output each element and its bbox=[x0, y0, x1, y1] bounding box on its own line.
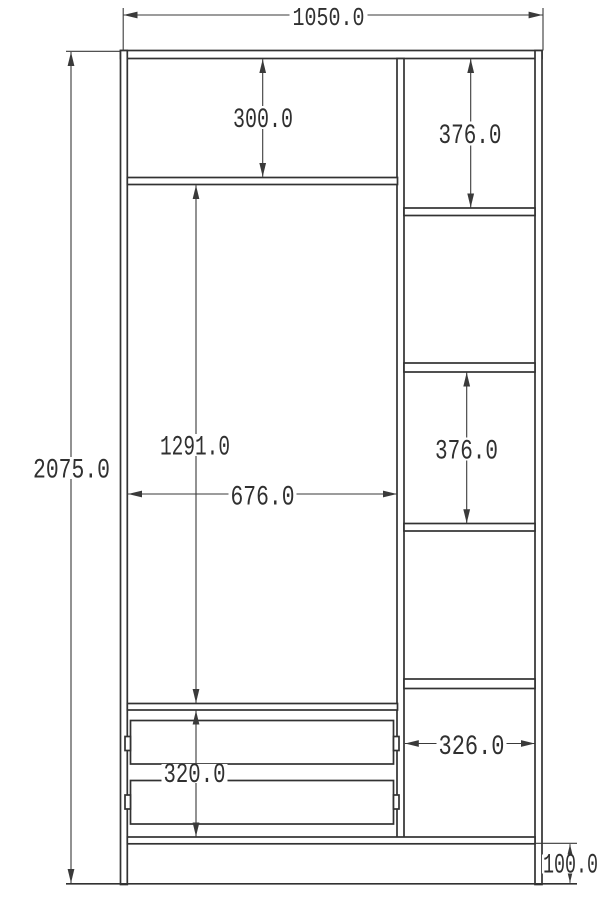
bottom-floor-board bbox=[127, 837, 535, 844]
right-shelf-2 bbox=[404, 363, 535, 372]
drawer-1-left-runner bbox=[125, 737, 131, 751]
right-shelf-1 bbox=[404, 208, 535, 216]
center-partition bbox=[397, 59, 404, 838]
wardrobe-dimension-drawing: 1050.0 2075.0 300.0 376.0 1291.0 676.0 3… bbox=[0, 0, 611, 907]
drawer-1-right-runner bbox=[394, 737, 400, 751]
right-shelf-4 bbox=[404, 679, 535, 689]
dim-main-height-label: 1291.0 bbox=[160, 433, 230, 464]
drawer-2-left-runner bbox=[125, 795, 131, 809]
dim-top-compartment-label: 300.0 bbox=[233, 105, 293, 136]
left-side-panel bbox=[121, 51, 128, 885]
drawer-1 bbox=[131, 721, 394, 765]
dim-overall-height-label: 2075.0 bbox=[33, 456, 110, 487]
drawer-2-right-runner bbox=[394, 795, 400, 809]
dim-main-width-label: 676.0 bbox=[231, 483, 295, 514]
top-board bbox=[121, 51, 543, 59]
dim-plinth-label: 100.0 bbox=[543, 851, 598, 882]
dim-right-middle-section-label: 376.0 bbox=[435, 437, 498, 468]
right-side-panel bbox=[535, 51, 542, 885]
drawing-svg: 1050.0 2075.0 300.0 376.0 1291.0 676.0 3… bbox=[0, 0, 611, 907]
dim-drawer-section-label: 320.0 bbox=[164, 760, 226, 791]
dim-right-column-width-label: 326.0 bbox=[439, 732, 505, 763]
dim-right-top-section-label: 376.0 bbox=[439, 121, 502, 152]
top-left-shelf bbox=[127, 178, 397, 185]
shelf-above-drawers bbox=[127, 704, 397, 711]
right-shelf-3 bbox=[404, 524, 535, 532]
dim-overall-width-label: 1050.0 bbox=[293, 3, 365, 33]
